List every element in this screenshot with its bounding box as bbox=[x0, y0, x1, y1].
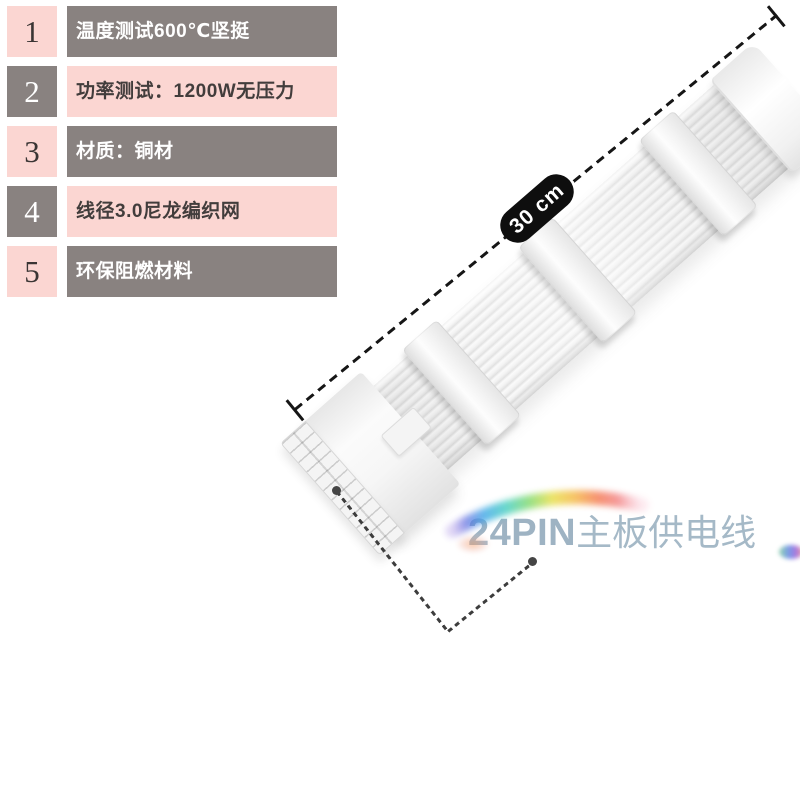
feature-item-1: 1 温度测试600℃坚挺 bbox=[7, 6, 337, 57]
feature-item-4: 4 线径3.0尼龙编织网 bbox=[7, 186, 337, 237]
feature-item-5: 5 环保阻燃材料 bbox=[7, 246, 337, 297]
feature-item-2: 2 功率测试：1200W无压力 bbox=[7, 66, 337, 117]
measure-tick bbox=[767, 5, 786, 27]
feature-text: 功率测试：1200W无压力 bbox=[67, 66, 337, 117]
leader-dot bbox=[528, 557, 537, 566]
leader-line bbox=[447, 561, 534, 632]
cable-photo bbox=[293, 47, 800, 542]
feature-text: 线径3.0尼龙编织网 bbox=[67, 186, 337, 237]
feature-number: 4 bbox=[7, 186, 57, 237]
product-detail-banner: 1 温度测试600℃坚挺 2 功率测试：1200W无压力 3 材质：铜材 4 线… bbox=[0, 0, 800, 800]
leader-dot bbox=[332, 486, 341, 495]
feature-text: 材质：铜材 bbox=[67, 126, 337, 177]
feature-item-3: 3 材质：铜材 bbox=[7, 126, 337, 177]
feature-number: 5 bbox=[7, 246, 57, 297]
feature-text: 环保阻燃材料 bbox=[67, 246, 337, 297]
feature-list: 1 温度测试600℃坚挺 2 功率测试：1200W无压力 3 材质：铜材 4 线… bbox=[7, 6, 337, 306]
product-caption: 24PIN主板供电线 bbox=[468, 512, 756, 562]
caption-model: 24PIN bbox=[468, 512, 576, 554]
caption-name: 主板供电线 bbox=[576, 512, 756, 553]
feature-number: 3 bbox=[7, 126, 57, 177]
feature-number: 2 bbox=[7, 66, 57, 117]
feature-text: 温度测试600℃坚挺 bbox=[67, 6, 337, 57]
feature-number: 1 bbox=[7, 6, 57, 57]
measure-tick bbox=[285, 399, 304, 421]
